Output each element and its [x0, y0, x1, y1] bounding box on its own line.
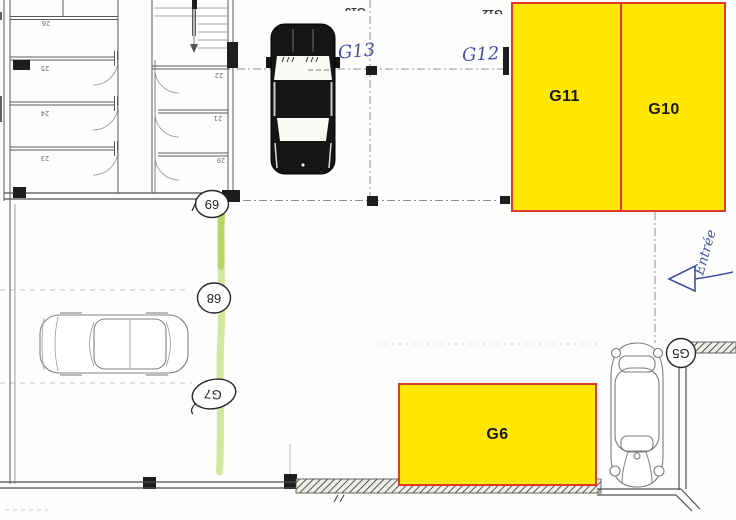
- garage-label-g10: G10: [648, 101, 679, 119]
- room-number-25: 25: [37, 64, 53, 72]
- cellar-block-walls: [4, 0, 238, 484]
- garage-label-g11: G11: [549, 88, 580, 106]
- stairwell: [154, 0, 228, 53]
- printed-label-g12-clipped: G12: [482, 2, 510, 14]
- garage-box-g10: G10: [620, 2, 726, 212]
- pen-marks: [334, 495, 344, 502]
- spot-label-68: 68: [199, 291, 229, 306]
- spot-label-69: 69: [197, 197, 227, 212]
- room-number-22: 22: [211, 71, 227, 79]
- spot-label-g5: G5: [666, 346, 696, 361]
- car-black-sedan-icon: [266, 24, 340, 174]
- room-number-23: 23: [37, 154, 53, 162]
- room-number-26: 26: [38, 19, 54, 27]
- handwritten-g12: G12: [461, 43, 499, 66]
- room-number-20: 20: [213, 156, 229, 164]
- door-arcs: [93, 60, 179, 180]
- garage-box-g6: G6: [398, 383, 597, 486]
- room-number-24: 24: [37, 109, 53, 117]
- room-number-21: 21: [210, 114, 226, 122]
- spot-label-g7: G7: [197, 385, 228, 403]
- garage-box-g11: G11: [511, 2, 622, 212]
- scanned-parking-plan: G11 G10 G6 G13 G12 69 68 G7 G5 26 25 24 …: [0, 0, 736, 520]
- car-outline-sedan-icon: [40, 313, 188, 375]
- garage-label-g6: G6: [486, 426, 508, 444]
- handwritten-g13: G13: [337, 39, 376, 63]
- car-beetle-icon: [610, 343, 664, 487]
- green-marker-line: [220, 213, 222, 472]
- printed-label-g13-clipped: G13: [345, 0, 375, 11]
